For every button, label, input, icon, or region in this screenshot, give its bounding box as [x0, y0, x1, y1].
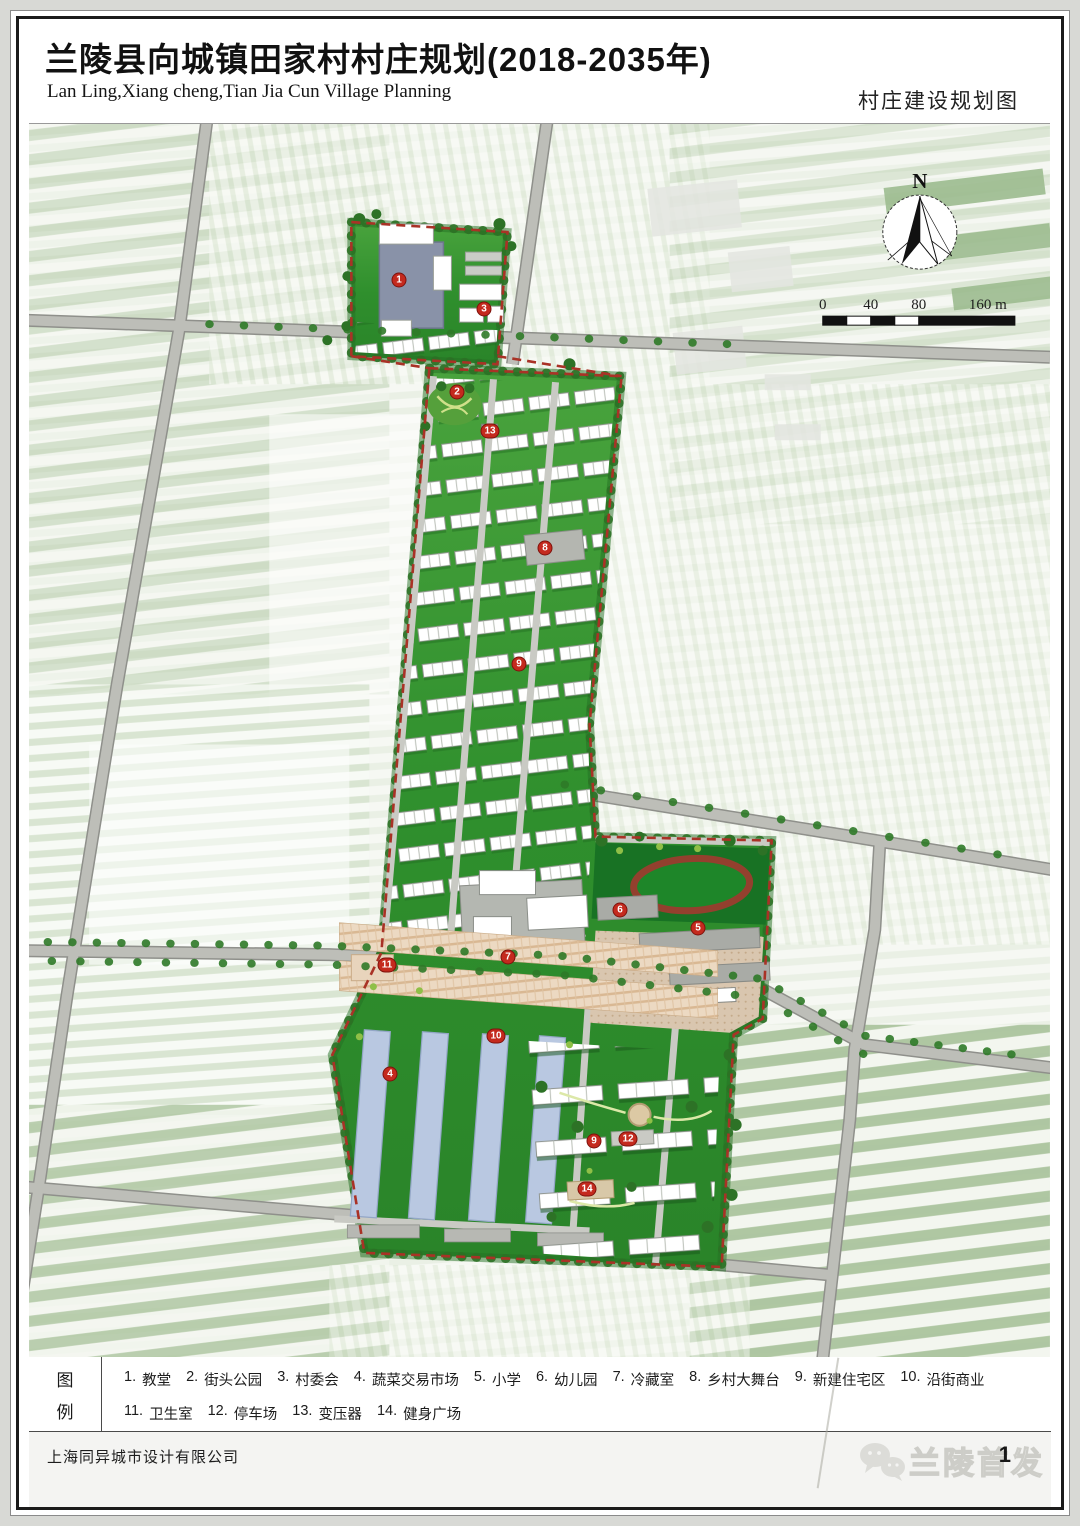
map-marker-1: 1 [392, 273, 407, 288]
map-marker-12: 12 [619, 1132, 638, 1147]
page-frame-inner: 兰陵县向城镇田家村村庄规划(2018-2035年) Lan Ling,Xiang… [16, 16, 1064, 1510]
page-frame-outer: 兰陵县向城镇田家村村庄规划(2018-2035年) Lan Ling,Xiang… [10, 10, 1070, 1516]
map-marker-3: 3 [477, 302, 492, 317]
map-sheet-label: 村庄建设规划图 [858, 85, 1019, 115]
map-marker-6: 6 [613, 903, 628, 918]
legend-item: 2.街头公园 [186, 1369, 262, 1390]
planning-map: N 0 40 80 160 m 13213896571110412914 [29, 123, 1050, 1358]
legend: 图 例 1.教堂2.街头公园3.村委会4.蔬菜交易市场5.小学6.幼儿园7.冷藏… [29, 1357, 1051, 1431]
map-marker-4: 4 [383, 1067, 398, 1082]
legend-item: 7.冷藏室 [613, 1369, 675, 1390]
legend-item: 4.蔬菜交易市场 [354, 1369, 459, 1390]
legend-row: 11.卫生室12.停车场13.变压器14.健身广场 [124, 1403, 1047, 1424]
legend-item: 12.停车场 [208, 1403, 278, 1424]
legend-key-cell: 图 例 [29, 1357, 102, 1431]
marker-layer: 13213896571110412914 [29, 124, 1050, 1357]
wechat-logo-icon [857, 1439, 909, 1483]
map-marker-11: 11 [378, 958, 397, 973]
map-marker-5: 5 [691, 921, 706, 936]
page-subtitle-en: Lan Ling,Xiang cheng,Tian Jia Cun Villag… [47, 81, 451, 103]
map-marker-13: 13 [481, 424, 500, 439]
map-marker-2: 2 [450, 385, 465, 400]
map-marker-10: 10 [487, 1029, 506, 1044]
map-marker-9: 9 [512, 657, 527, 672]
footer: 上海同异城市设计有限公司 兰陵首发 1 [29, 1431, 1051, 1507]
legend-item: 6.幼儿园 [536, 1369, 598, 1390]
legend-row: 1.教堂2.街头公园3.村委会4.蔬菜交易市场5.小学6.幼儿园7.冷藏室8.乡… [124, 1369, 1047, 1390]
watermark: 兰陵首发 [857, 1438, 1045, 1483]
legend-item: 11.卫生室 [124, 1403, 193, 1424]
legend-item: 9.新建住宅区 [795, 1369, 886, 1390]
legend-item: 13.变压器 [292, 1403, 362, 1424]
legend-item: 10.沿街商业 [900, 1369, 984, 1390]
legend-item: 5.小学 [474, 1369, 521, 1390]
map-marker-9: 9 [587, 1134, 602, 1149]
legend-items: 1.教堂2.街头公园3.村委会4.蔬菜交易市场5.小学6.幼儿园7.冷藏室8.乡… [102, 1357, 1051, 1431]
legend-item: 14.健身广场 [377, 1403, 461, 1424]
legend-key-char: 图 [57, 1366, 74, 1391]
company-name: 上海同异城市设计有限公司 [47, 1446, 239, 1467]
page-title: 兰陵县向城镇田家村村庄规划(2018-2035年) [45, 33, 712, 81]
watermark-text: 兰陵首发 [909, 1438, 1045, 1483]
map-marker-8: 8 [538, 541, 553, 556]
map-marker-7: 7 [501, 950, 516, 965]
map-marker-14: 14 [578, 1182, 597, 1197]
legend-item: 1.教堂 [124, 1369, 171, 1390]
legend-key-char: 例 [57, 1398, 74, 1423]
page-number: 1 [999, 1442, 1011, 1468]
legend-item: 8.乡村大舞台 [689, 1369, 780, 1390]
header: 兰陵县向城镇田家村村庄规划(2018-2035年) Lan Ling,Xiang… [19, 19, 1061, 123]
legend-item: 3.村委会 [277, 1369, 339, 1390]
